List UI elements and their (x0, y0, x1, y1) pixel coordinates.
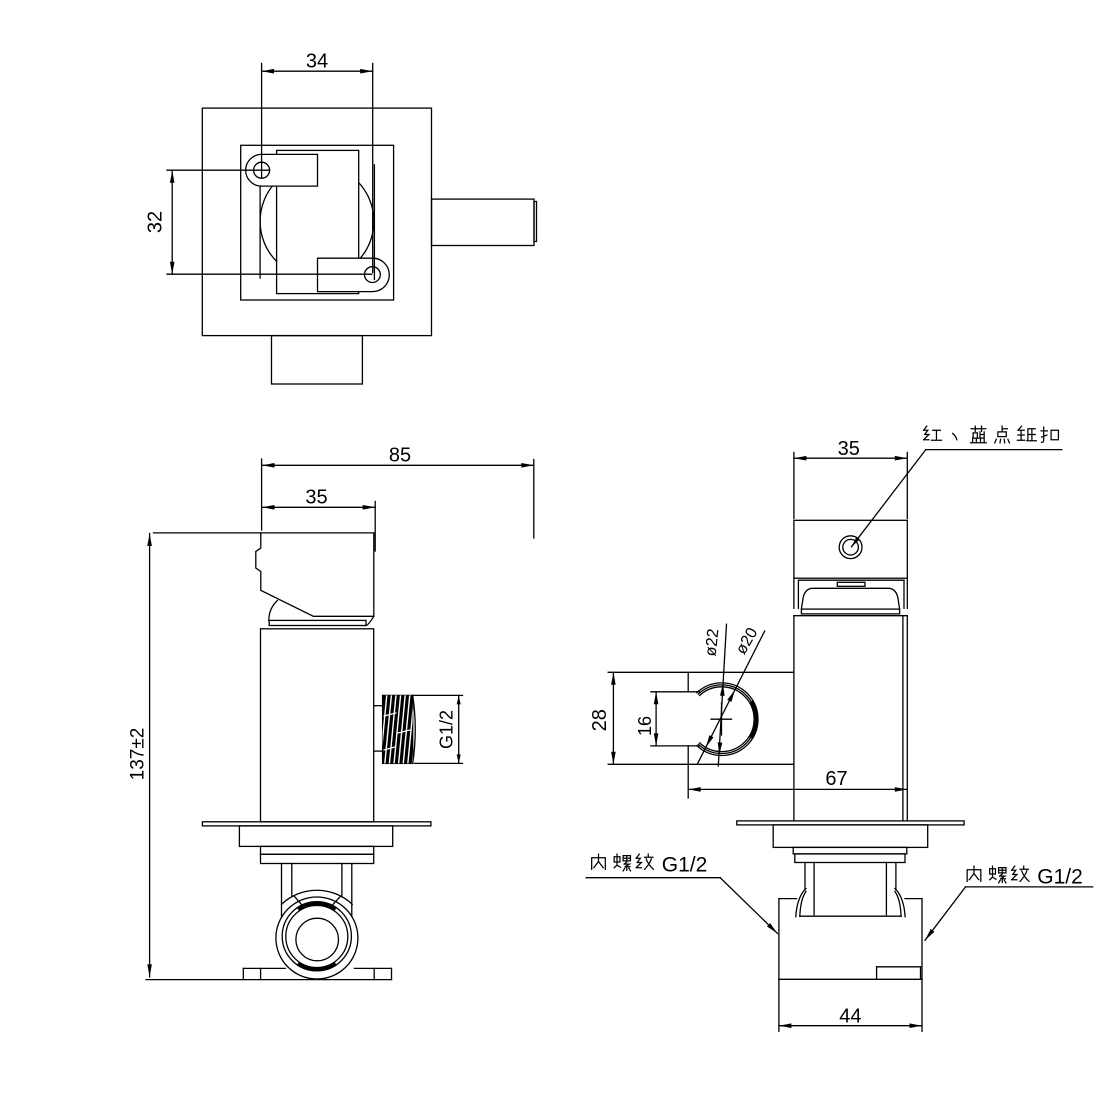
svg-text:35: 35 (838, 438, 860, 460)
svg-text:32: 32 (145, 211, 167, 233)
svg-text:ø20: ø20 (733, 625, 762, 657)
svg-text:137±2: 137±2 (128, 728, 149, 781)
svg-text:ø22: ø22 (703, 628, 723, 657)
svg-text:16: 16 (635, 716, 655, 736)
svg-text:85: 85 (389, 445, 411, 467)
svg-text:34: 34 (306, 51, 328, 73)
svg-text:28: 28 (589, 709, 611, 731)
svg-text:67: 67 (825, 768, 847, 790)
svg-text:35: 35 (305, 486, 327, 508)
svg-text:G1/2: G1/2 (437, 710, 457, 749)
svg-text:G1/2: G1/2 (1037, 866, 1083, 889)
svg-text:G1/2: G1/2 (662, 854, 708, 877)
svg-text:44: 44 (839, 1006, 861, 1028)
